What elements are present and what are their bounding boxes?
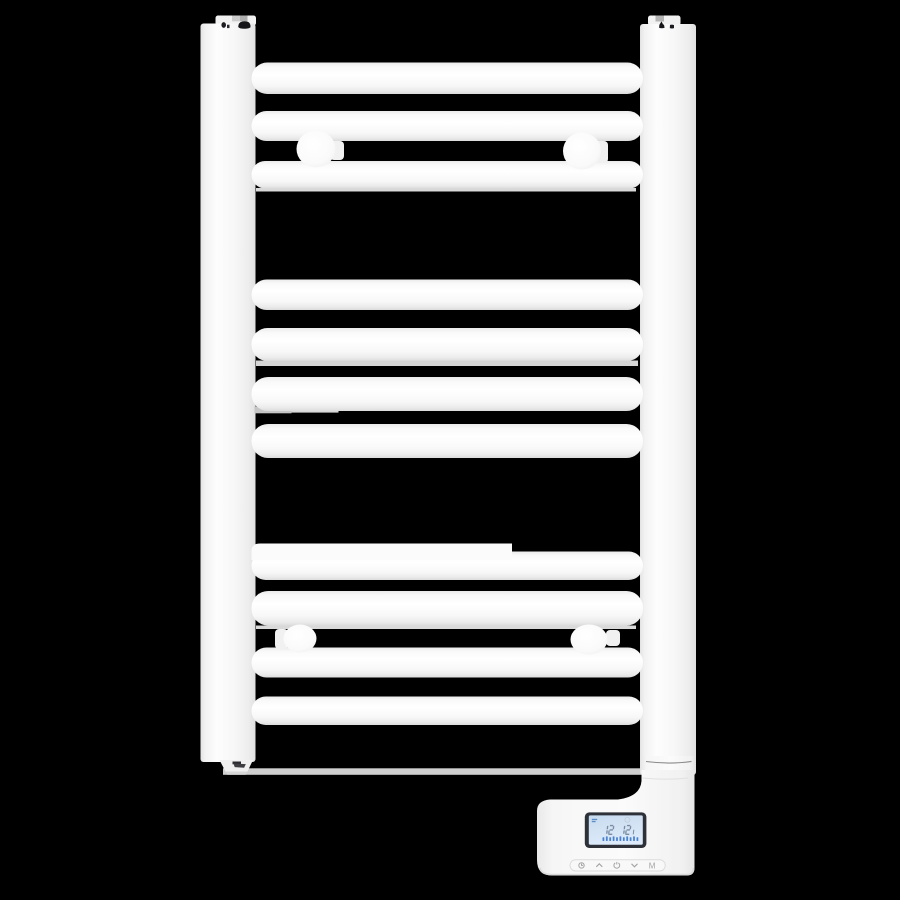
svg-text:M: M — [649, 861, 656, 870]
